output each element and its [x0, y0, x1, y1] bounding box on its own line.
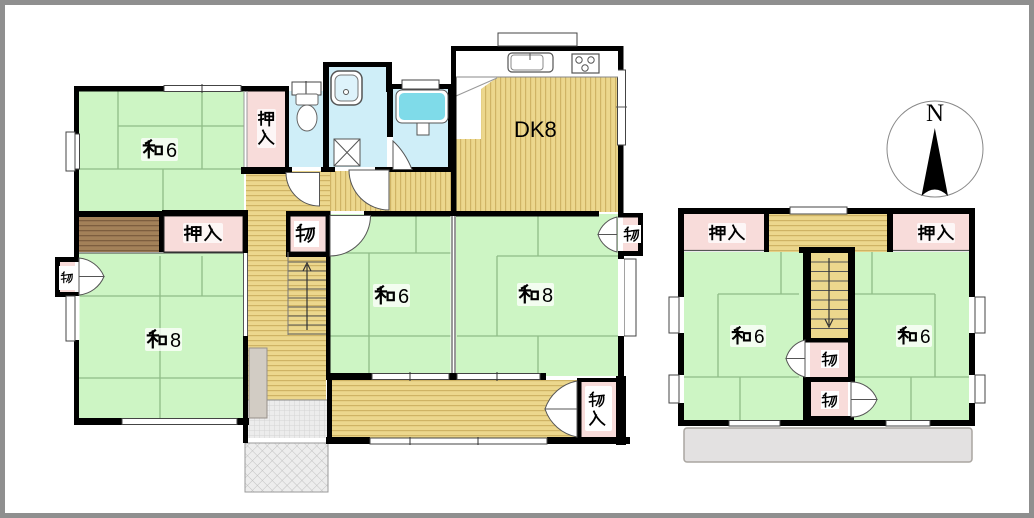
svg-text:DK8: DK8 — [514, 117, 557, 142]
svg-text:8: 8 — [542, 285, 553, 307]
svg-text:6: 6 — [166, 140, 177, 162]
svg-text:6: 6 — [920, 327, 931, 348]
svg-text:6: 6 — [754, 327, 765, 348]
svg-text:N: N — [926, 100, 944, 127]
svg-text:8: 8 — [170, 330, 181, 352]
svg-text:6: 6 — [398, 286, 409, 308]
